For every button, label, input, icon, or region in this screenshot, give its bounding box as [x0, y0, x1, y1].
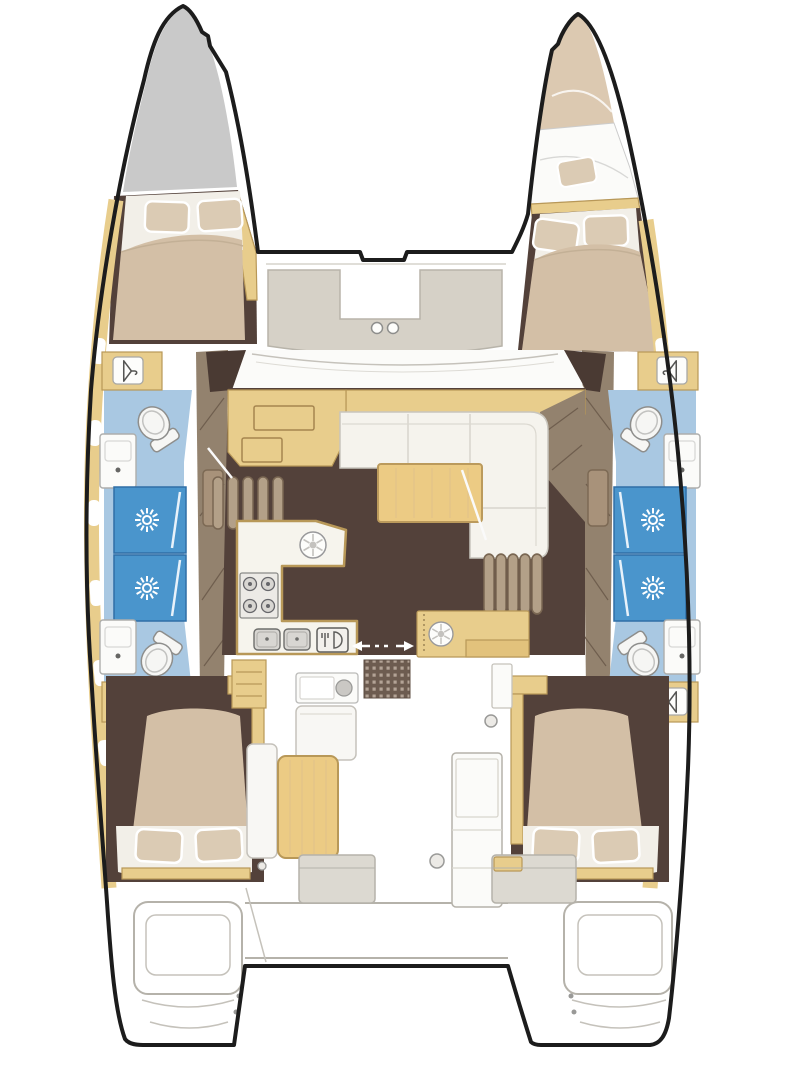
- floorplan-canvas: Catamaran interior layout floor plan (to…: [0, 0, 810, 1080]
- cupholder-icon: [388, 323, 399, 334]
- deck-fitting: [258, 862, 266, 870]
- port-forward-cabin: [109, 190, 257, 344]
- cockpit-table: [278, 756, 338, 858]
- aft-bench-port: [299, 855, 375, 903]
- cupholder-icon: [372, 323, 383, 334]
- aft-bench-starboard: [492, 855, 576, 903]
- aft-galley-cabinet: [417, 611, 529, 657]
- hob: [240, 573, 278, 618]
- deck-hatch: [588, 470, 608, 526]
- port-bathrooms: [100, 352, 192, 722]
- starboard-cabin-step: [492, 664, 512, 708]
- saloon: [208, 388, 585, 657]
- deck-fitting: [430, 854, 444, 868]
- dishwasher-drawer: [317, 628, 348, 652]
- deck-fitting: [485, 715, 497, 727]
- cockpit-grating: [364, 660, 410, 698]
- port-cabin-steps: [232, 660, 266, 708]
- cockpit-wet-locker: [296, 673, 358, 703]
- saloon-table: [378, 464, 482, 522]
- boat-floorplan-svg: Catamaran interior layout floor plan (to…: [0, 0, 810, 1080]
- starboard-aft-cabin: [511, 676, 669, 882]
- nav-station: [228, 390, 346, 466]
- windshield: [206, 350, 606, 392]
- starboard-side-deck: [582, 350, 614, 690]
- cockpit-bench-side: [247, 744, 277, 858]
